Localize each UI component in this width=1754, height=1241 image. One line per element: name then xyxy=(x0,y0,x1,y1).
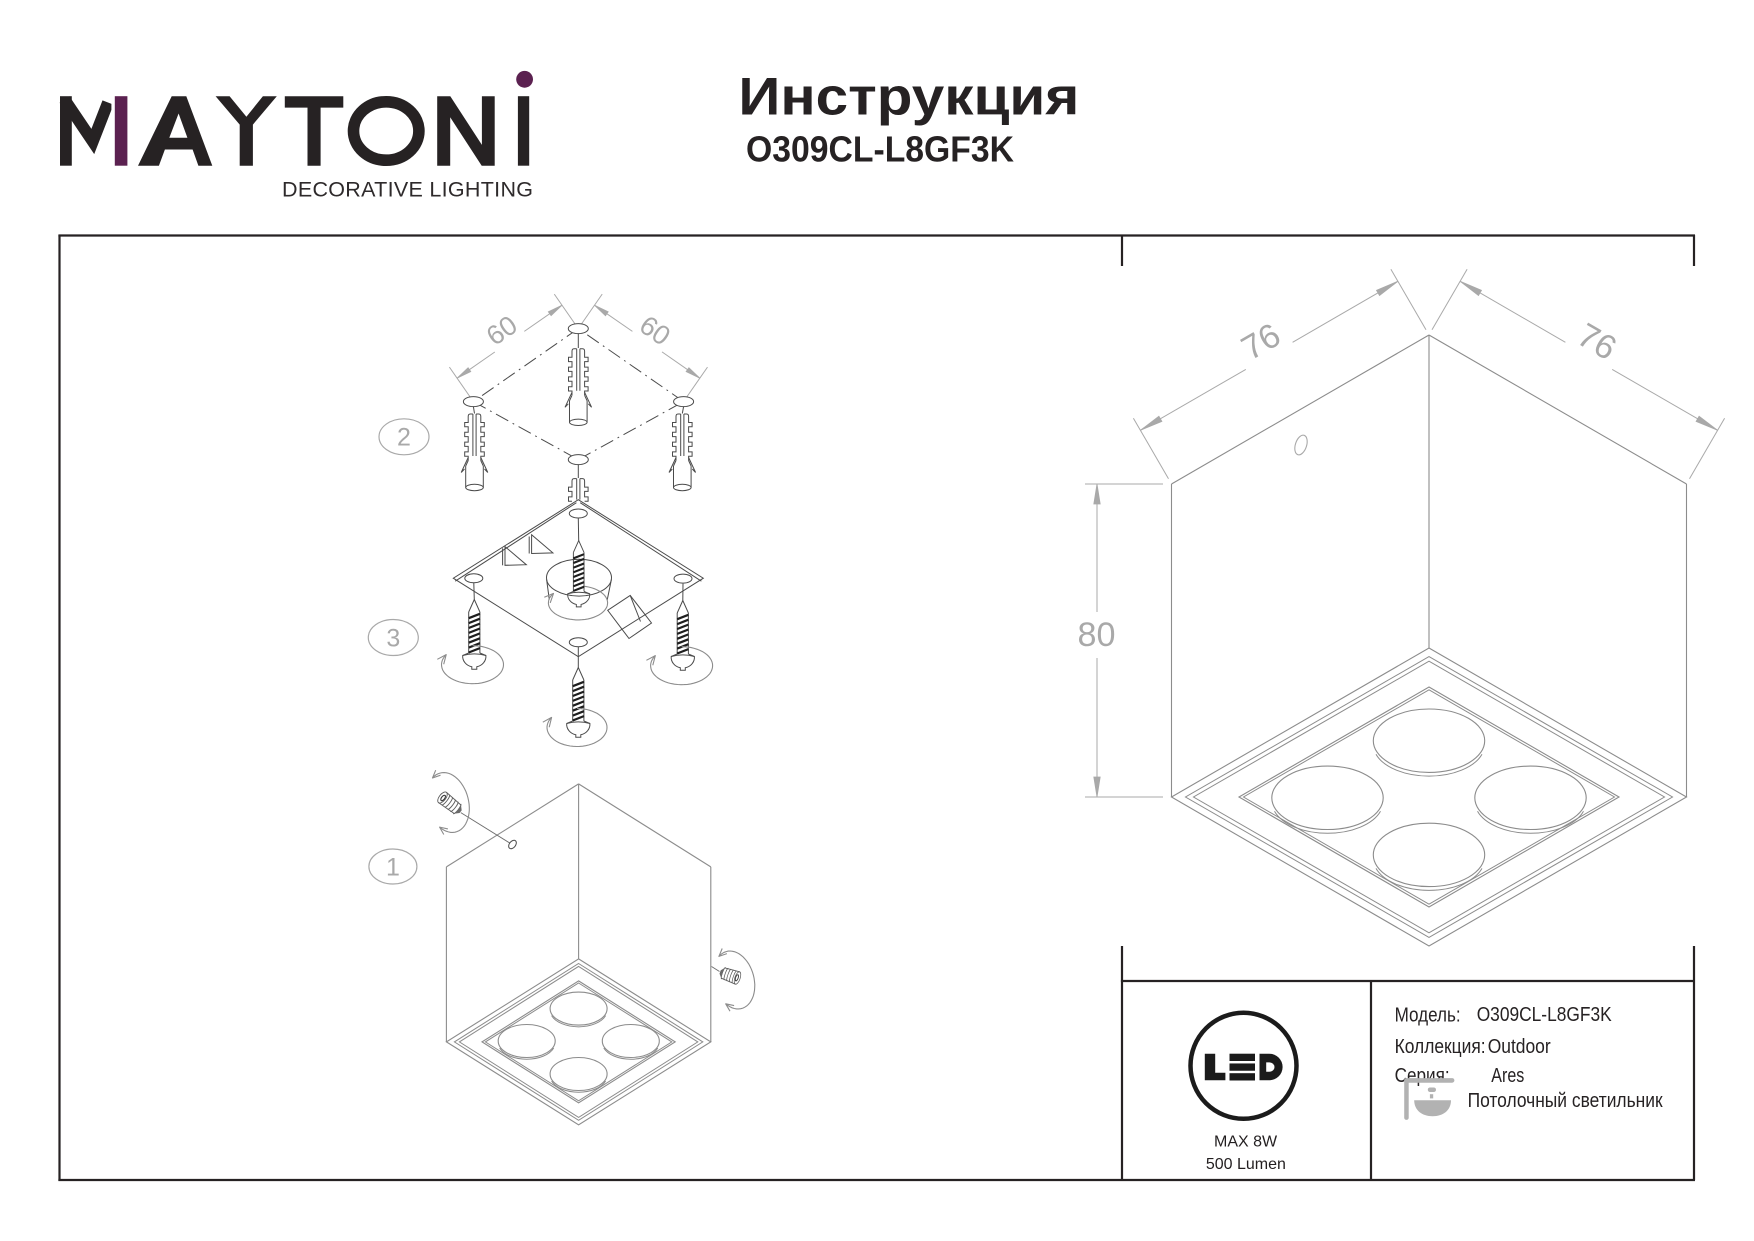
svg-text:O309CL-L8GF3K: O309CL-L8GF3K xyxy=(1477,1004,1613,1026)
svg-text:Серия:: Серия: xyxy=(1395,1065,1450,1087)
svg-text:Outdoor: Outdoor xyxy=(1488,1036,1551,1058)
svg-text:O309CL-L8GF3K: O309CL-L8GF3K xyxy=(746,128,1014,169)
svg-text:MAX 8W: MAX 8W xyxy=(1214,1134,1278,1151)
svg-text:Ares: Ares xyxy=(1491,1065,1524,1087)
svg-text:2: 2 xyxy=(397,424,411,452)
svg-text:500 Lumen: 500 Lumen xyxy=(1206,1156,1286,1173)
svg-text:DECORATIVE LIGHTING: DECORATIVE LIGHTING xyxy=(282,177,533,201)
svg-text:Коллекция:: Коллекция: xyxy=(1395,1036,1486,1058)
svg-text:Модель:: Модель: xyxy=(1395,1005,1461,1027)
svg-text:1: 1 xyxy=(386,853,400,881)
svg-text:Инструкция: Инструкция xyxy=(738,68,1079,127)
svg-text:80: 80 xyxy=(1078,616,1116,654)
svg-text:Потолочный светильник: Потолочный светильник xyxy=(1468,1090,1663,1112)
svg-text:3: 3 xyxy=(386,624,400,652)
